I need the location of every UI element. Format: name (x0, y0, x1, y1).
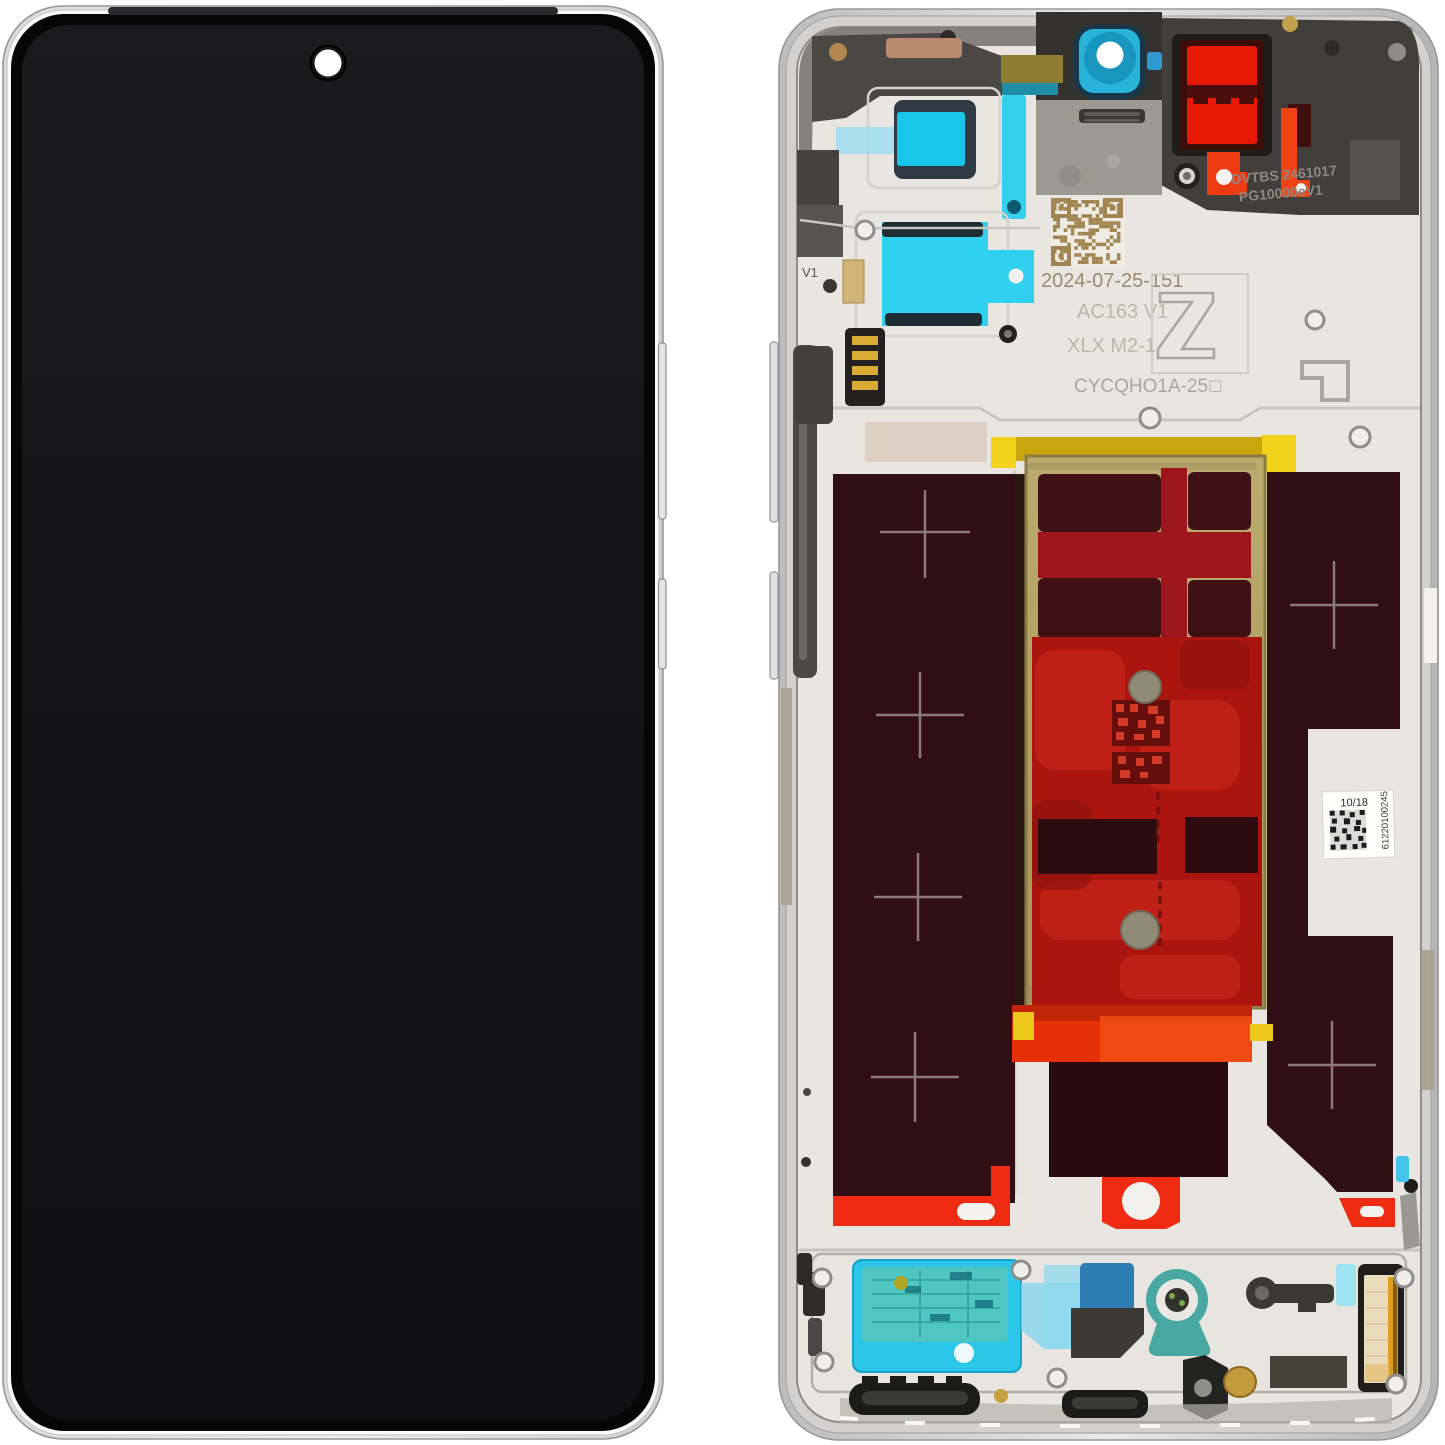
svg-text:CYCQHO1A-25 □: CYCQHO1A-25 □ (1074, 376, 1222, 397)
svg-text:10/18: 10/18 (1340, 797, 1368, 810)
svg-text:61220100245: 61220100245 (1379, 791, 1392, 849)
svg-text:XLX M2-1: XLX M2-1 (1067, 335, 1156, 357)
svg-text:V1: V1 (802, 265, 818, 280)
svg-text:AC163 V1: AC163 V1 (1077, 301, 1168, 323)
